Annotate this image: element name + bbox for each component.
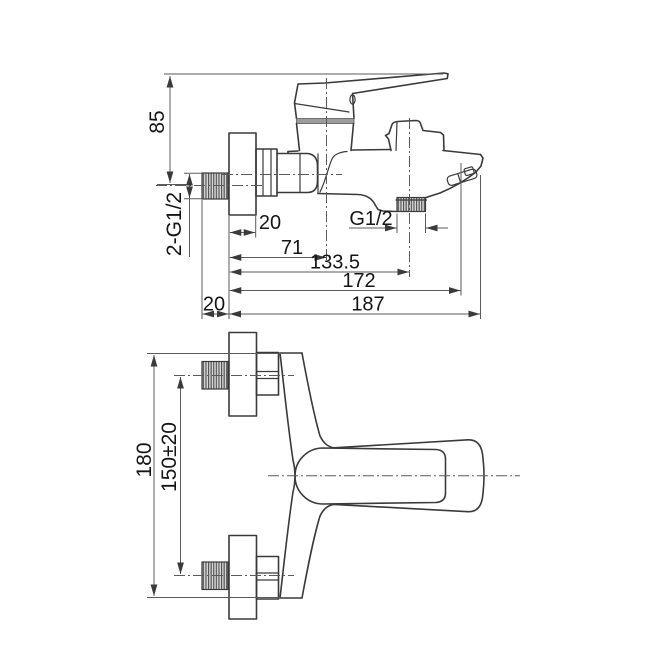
front-top-mount bbox=[202, 333, 279, 417]
dim-wall-20: 20 bbox=[203, 294, 225, 316]
dim-180: 180 bbox=[133, 442, 156, 477]
side-outlet-thread bbox=[396, 198, 427, 212]
dim-g12: G1/2 bbox=[349, 208, 392, 230]
dim-150-20: 150±20 bbox=[158, 422, 181, 492]
side-aerator-detail bbox=[446, 166, 478, 186]
handle-seam-band bbox=[297, 119, 355, 124]
side-hex-nut bbox=[256, 149, 277, 196]
dim-flange-20: 20 bbox=[259, 212, 281, 234]
dim-172: 172 bbox=[342, 270, 375, 292]
side-lever-handle bbox=[295, 73, 449, 151]
side-view: 85 2-G1/2 20 G1/2 71 133.5 172 187 20 bbox=[146, 73, 483, 319]
faucet-technical-drawing: 85 2-G1/2 20 G1/2 71 133.5 172 187 20 bbox=[0, 0, 669, 670]
dim-85: 85 bbox=[146, 110, 169, 133]
front-bottom-mount bbox=[202, 536, 279, 620]
technical-drawing-page: 85 2-G1/2 20 G1/2 71 133.5 172 187 20 bbox=[0, 0, 669, 670]
side-diverter-knob bbox=[386, 121, 445, 151]
front-view: 180 150±20 bbox=[133, 333, 520, 620]
dim-2-g12: 2-G1/2 bbox=[163, 192, 186, 256]
dim-71: 71 bbox=[281, 237, 303, 259]
dim-187: 187 bbox=[351, 294, 384, 316]
side-adapter bbox=[277, 154, 318, 193]
